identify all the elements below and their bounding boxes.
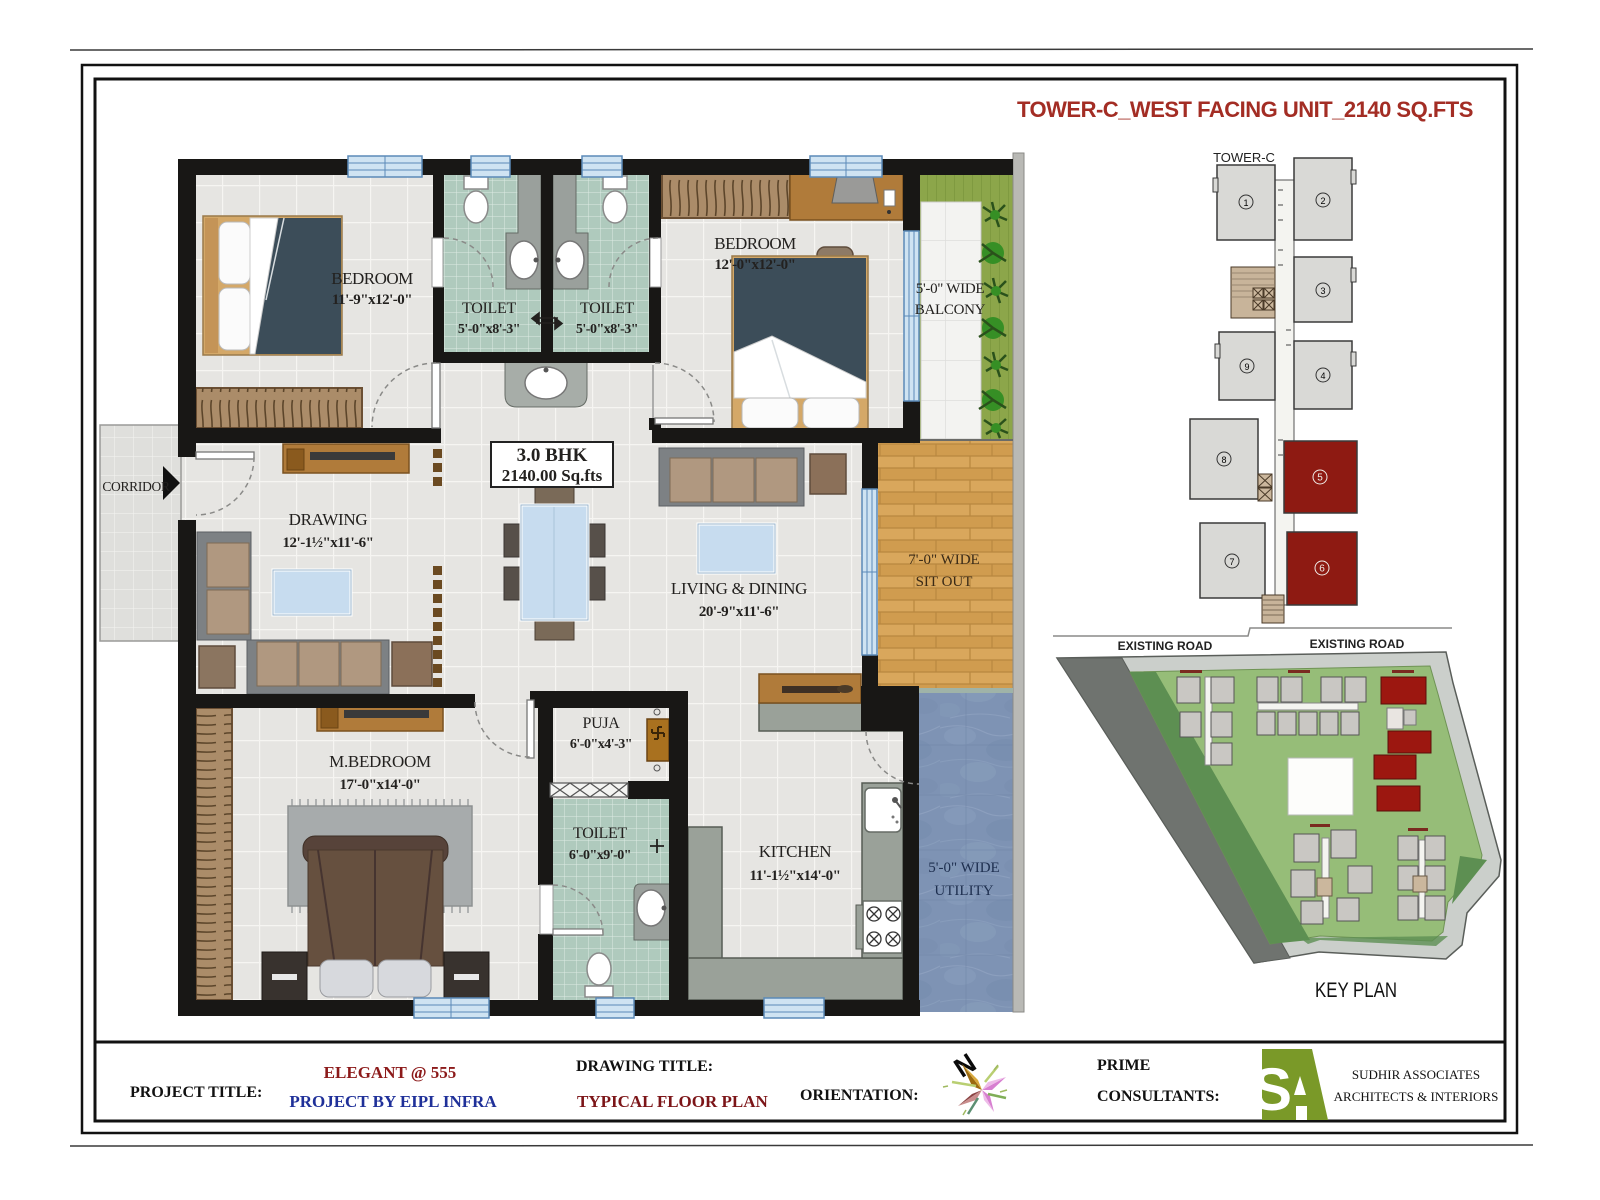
svg-text:ELEGANT @ 555: ELEGANT @ 555: [324, 1063, 457, 1082]
svg-text:BEDROOM: BEDROOM: [714, 234, 796, 253]
svg-text:DRAWING: DRAWING: [289, 510, 368, 529]
svg-text:11'-9"x12'-0": 11'-9"x12'-0": [332, 292, 412, 308]
svg-text:11'-1½"x14'-0": 11'-1½"x14'-0": [750, 868, 841, 884]
svg-text:LIVING & DINING: LIVING & DINING: [671, 579, 807, 598]
svg-text:6'-0"x9'-0": 6'-0"x9'-0": [569, 848, 631, 863]
svg-text:20'-9"x11'-6": 20'-9"x11'-6": [699, 604, 779, 620]
svg-text:TOILET: TOILET: [580, 300, 634, 317]
svg-text:8: 8: [1221, 455, 1226, 465]
svg-text:PROJECT BY EIPL INFRA: PROJECT BY EIPL INFRA: [289, 1092, 497, 1111]
svg-text:5'-0" WIDE: 5'-0" WIDE: [928, 860, 999, 876]
svg-text:2: 2: [1320, 196, 1325, 206]
svg-text:UTILITY: UTILITY: [934, 883, 993, 899]
svg-text:5: 5: [1317, 473, 1323, 484]
svg-text:6: 6: [1319, 564, 1325, 575]
svg-text:12'-0"x12'-0": 12'-0"x12'-0": [715, 257, 796, 273]
svg-text:KEY PLAN: KEY PLAN: [1315, 979, 1397, 1002]
svg-text:SIT OUT: SIT OUT: [916, 574, 973, 590]
svg-text:3: 3: [1320, 286, 1325, 296]
svg-text:TOILET: TOILET: [462, 300, 516, 317]
svg-text:DRAWING TITLE:: DRAWING TITLE:: [576, 1058, 713, 1075]
svg-text:CONSULTANTS:: CONSULTANTS:: [1097, 1088, 1220, 1105]
svg-text:7: 7: [1229, 557, 1234, 567]
svg-text:5'-0"x8'-3": 5'-0"x8'-3": [458, 322, 520, 337]
svg-text:TYPICAL FLOOR PLAN: TYPICAL FLOOR PLAN: [577, 1092, 769, 1111]
svg-text:KITCHEN: KITCHEN: [759, 842, 832, 861]
svg-text:5'-0" WIDE: 5'-0" WIDE: [916, 281, 985, 297]
svg-text:7'-0" WIDE: 7'-0" WIDE: [908, 552, 979, 568]
svg-text:ARCHITECTS & INTERIORS: ARCHITECTS & INTERIORS: [1334, 1089, 1499, 1104]
svg-text:ORIENTATION:: ORIENTATION:: [800, 1087, 919, 1104]
svg-text:PRIME: PRIME: [1097, 1057, 1150, 1074]
svg-text:TOWER-C_WEST FACING UNIT_2140: TOWER-C_WEST FACING UNIT_2140 SQ.FTS: [1017, 97, 1473, 122]
svg-text:EXISTING ROAD: EXISTING ROAD: [1310, 637, 1405, 651]
svg-text:S: S: [1252, 1056, 1292, 1123]
svg-text:6'-0"x4'-3": 6'-0"x4'-3": [570, 737, 632, 752]
svg-text:9: 9: [1244, 362, 1249, 372]
svg-text:17'-0"x14'-0": 17'-0"x14'-0": [340, 777, 421, 793]
svg-text:1: 1: [1243, 198, 1248, 208]
svg-text:BALCONY: BALCONY: [915, 302, 986, 318]
svg-text:12'-1½"x11'-6": 12'-1½"x11'-6": [283, 535, 374, 551]
svg-text:4: 4: [1320, 371, 1325, 381]
svg-text:CORRIDOR: CORRIDOR: [102, 479, 170, 494]
svg-text:TOILET: TOILET: [573, 825, 627, 842]
svg-text:EXISTING ROAD: EXISTING ROAD: [1118, 639, 1213, 653]
svg-text:TOWER-C: TOWER-C: [1213, 150, 1275, 165]
svg-text:5'-0"x8'-3": 5'-0"x8'-3": [576, 322, 638, 337]
svg-text:PROJECT TITLE:: PROJECT TITLE:: [130, 1084, 262, 1101]
svg-text:M.BEDROOM: M.BEDROOM: [329, 752, 431, 771]
svg-text:2140.00 Sq.fts: 2140.00 Sq.fts: [502, 466, 603, 485]
svg-text:BEDROOM: BEDROOM: [331, 269, 413, 288]
svg-text:SUDHIR ASSOCIATES: SUDHIR ASSOCIATES: [1352, 1067, 1480, 1082]
svg-text:3.0 BHK: 3.0 BHK: [517, 445, 588, 466]
svg-text:PUJA: PUJA: [582, 715, 620, 732]
